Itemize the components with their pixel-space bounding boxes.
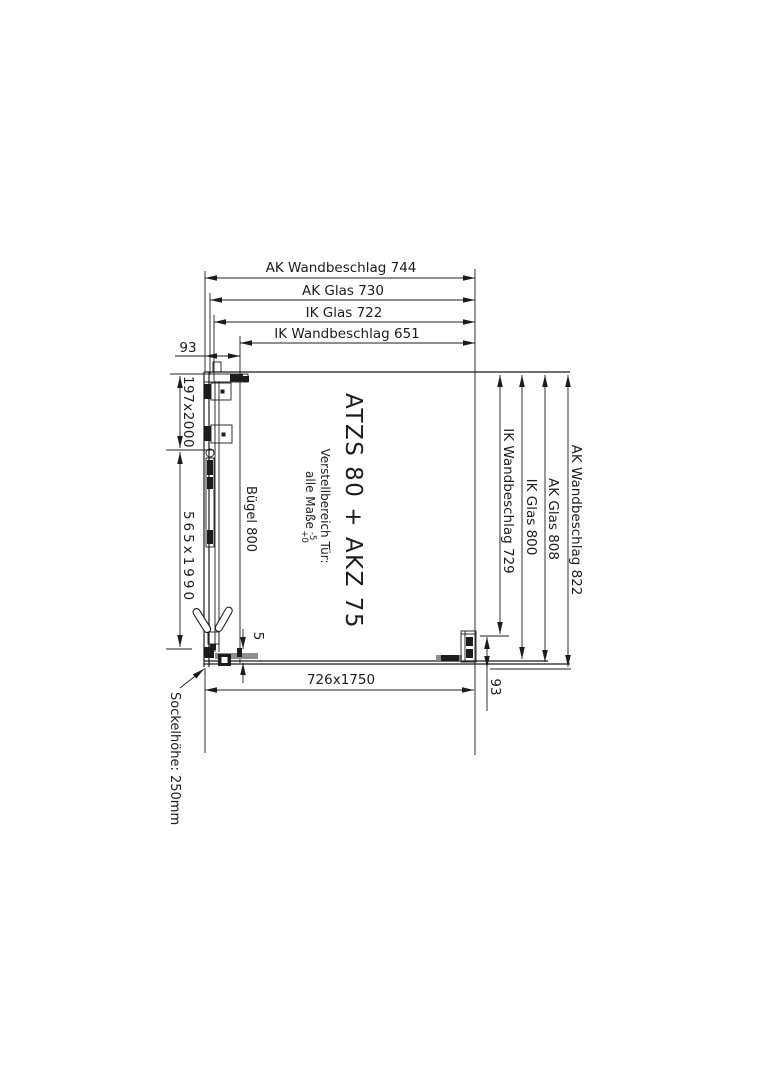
bottom-left-fittings [204, 647, 258, 666]
label-sockelhoehe: Sockelhöhe: 250mm [167, 692, 182, 825]
dim-label-197x2000: 197x2000 [180, 376, 196, 448]
door-knob-pair [192, 606, 234, 650]
hinge-assembly [206, 449, 214, 547]
dim-label-ak-glas-730: AK Glas 730 [302, 283, 384, 299]
leader-line-sockelhoehe [180, 669, 204, 688]
dim-label-gap-5: 5 [250, 632, 266, 641]
knob-inner [214, 606, 234, 633]
dim-label-ik-glas-800: IK Glas 800 [523, 479, 539, 556]
bracket-block [243, 376, 249, 382]
knob-mount [208, 632, 219, 644]
shower-enclosure-plan-drawing: AK Wandbeschlag 744 AK Glas 730 IK Glas … [0, 0, 763, 1080]
adjustment-note-line1: Verstellbereich Tür: [318, 448, 332, 563]
dim-label-ik-wandbeschlag-729: IK Wandbeschlag 729 [500, 428, 516, 574]
dim-label-ak-glas-808: AK Glas 808 [545, 478, 561, 560]
dim-label-ak-wandbeschlag-822: AK Wandbeschlag 822 [568, 445, 584, 596]
dim-label-565x1990: 565x1990 [180, 511, 196, 603]
clamp-screw [221, 390, 225, 394]
clamp-block [204, 384, 211, 399]
clamp-screw [222, 433, 226, 437]
guide-block [237, 648, 242, 657]
label-buegel-800: Bügel 800 [243, 486, 258, 552]
technical-drawing-sheet: AK Wandbeschlag 744 AK Glas 730 IK Glas … [0, 0, 763, 1080]
bracket-segment [466, 637, 473, 646]
dim-label-93-top: 93 [179, 340, 196, 356]
dim-label-ak-wandbeschlag-744: AK Wandbeschlag 744 [266, 260, 417, 276]
dim-label-ik-glas-722: IK Glas 722 [306, 305, 383, 321]
bottom-right-fittings [436, 631, 476, 662]
adjustment-note-prefix: alle Maße [303, 471, 317, 529]
bracket-segment [466, 649, 473, 658]
hinge-segment [207, 477, 213, 489]
clamp-block [204, 426, 211, 441]
corner-block-screw [222, 657, 228, 663]
profile-block [441, 655, 459, 661]
product-title: ATZS 80 + AKZ 75 [340, 393, 366, 629]
hinge-segment [207, 460, 213, 475]
middle-clamp-bracket [204, 425, 232, 443]
top-wall-bracket [204, 374, 249, 400]
dim-label-726x1750: 726x1750 [307, 672, 375, 688]
adjustment-note-line2: alle Maße-5+0 [299, 471, 317, 543]
corner-bracket [204, 647, 214, 658]
hinge-segment [207, 530, 213, 544]
dim-label-ik-wandbeschlag-651: IK Wandbeschlag 651 [274, 326, 420, 342]
dim-label-93-bottom: 93 [487, 678, 503, 695]
bracket-block [230, 375, 243, 382]
tolerance-lower: +0 [299, 530, 309, 543]
